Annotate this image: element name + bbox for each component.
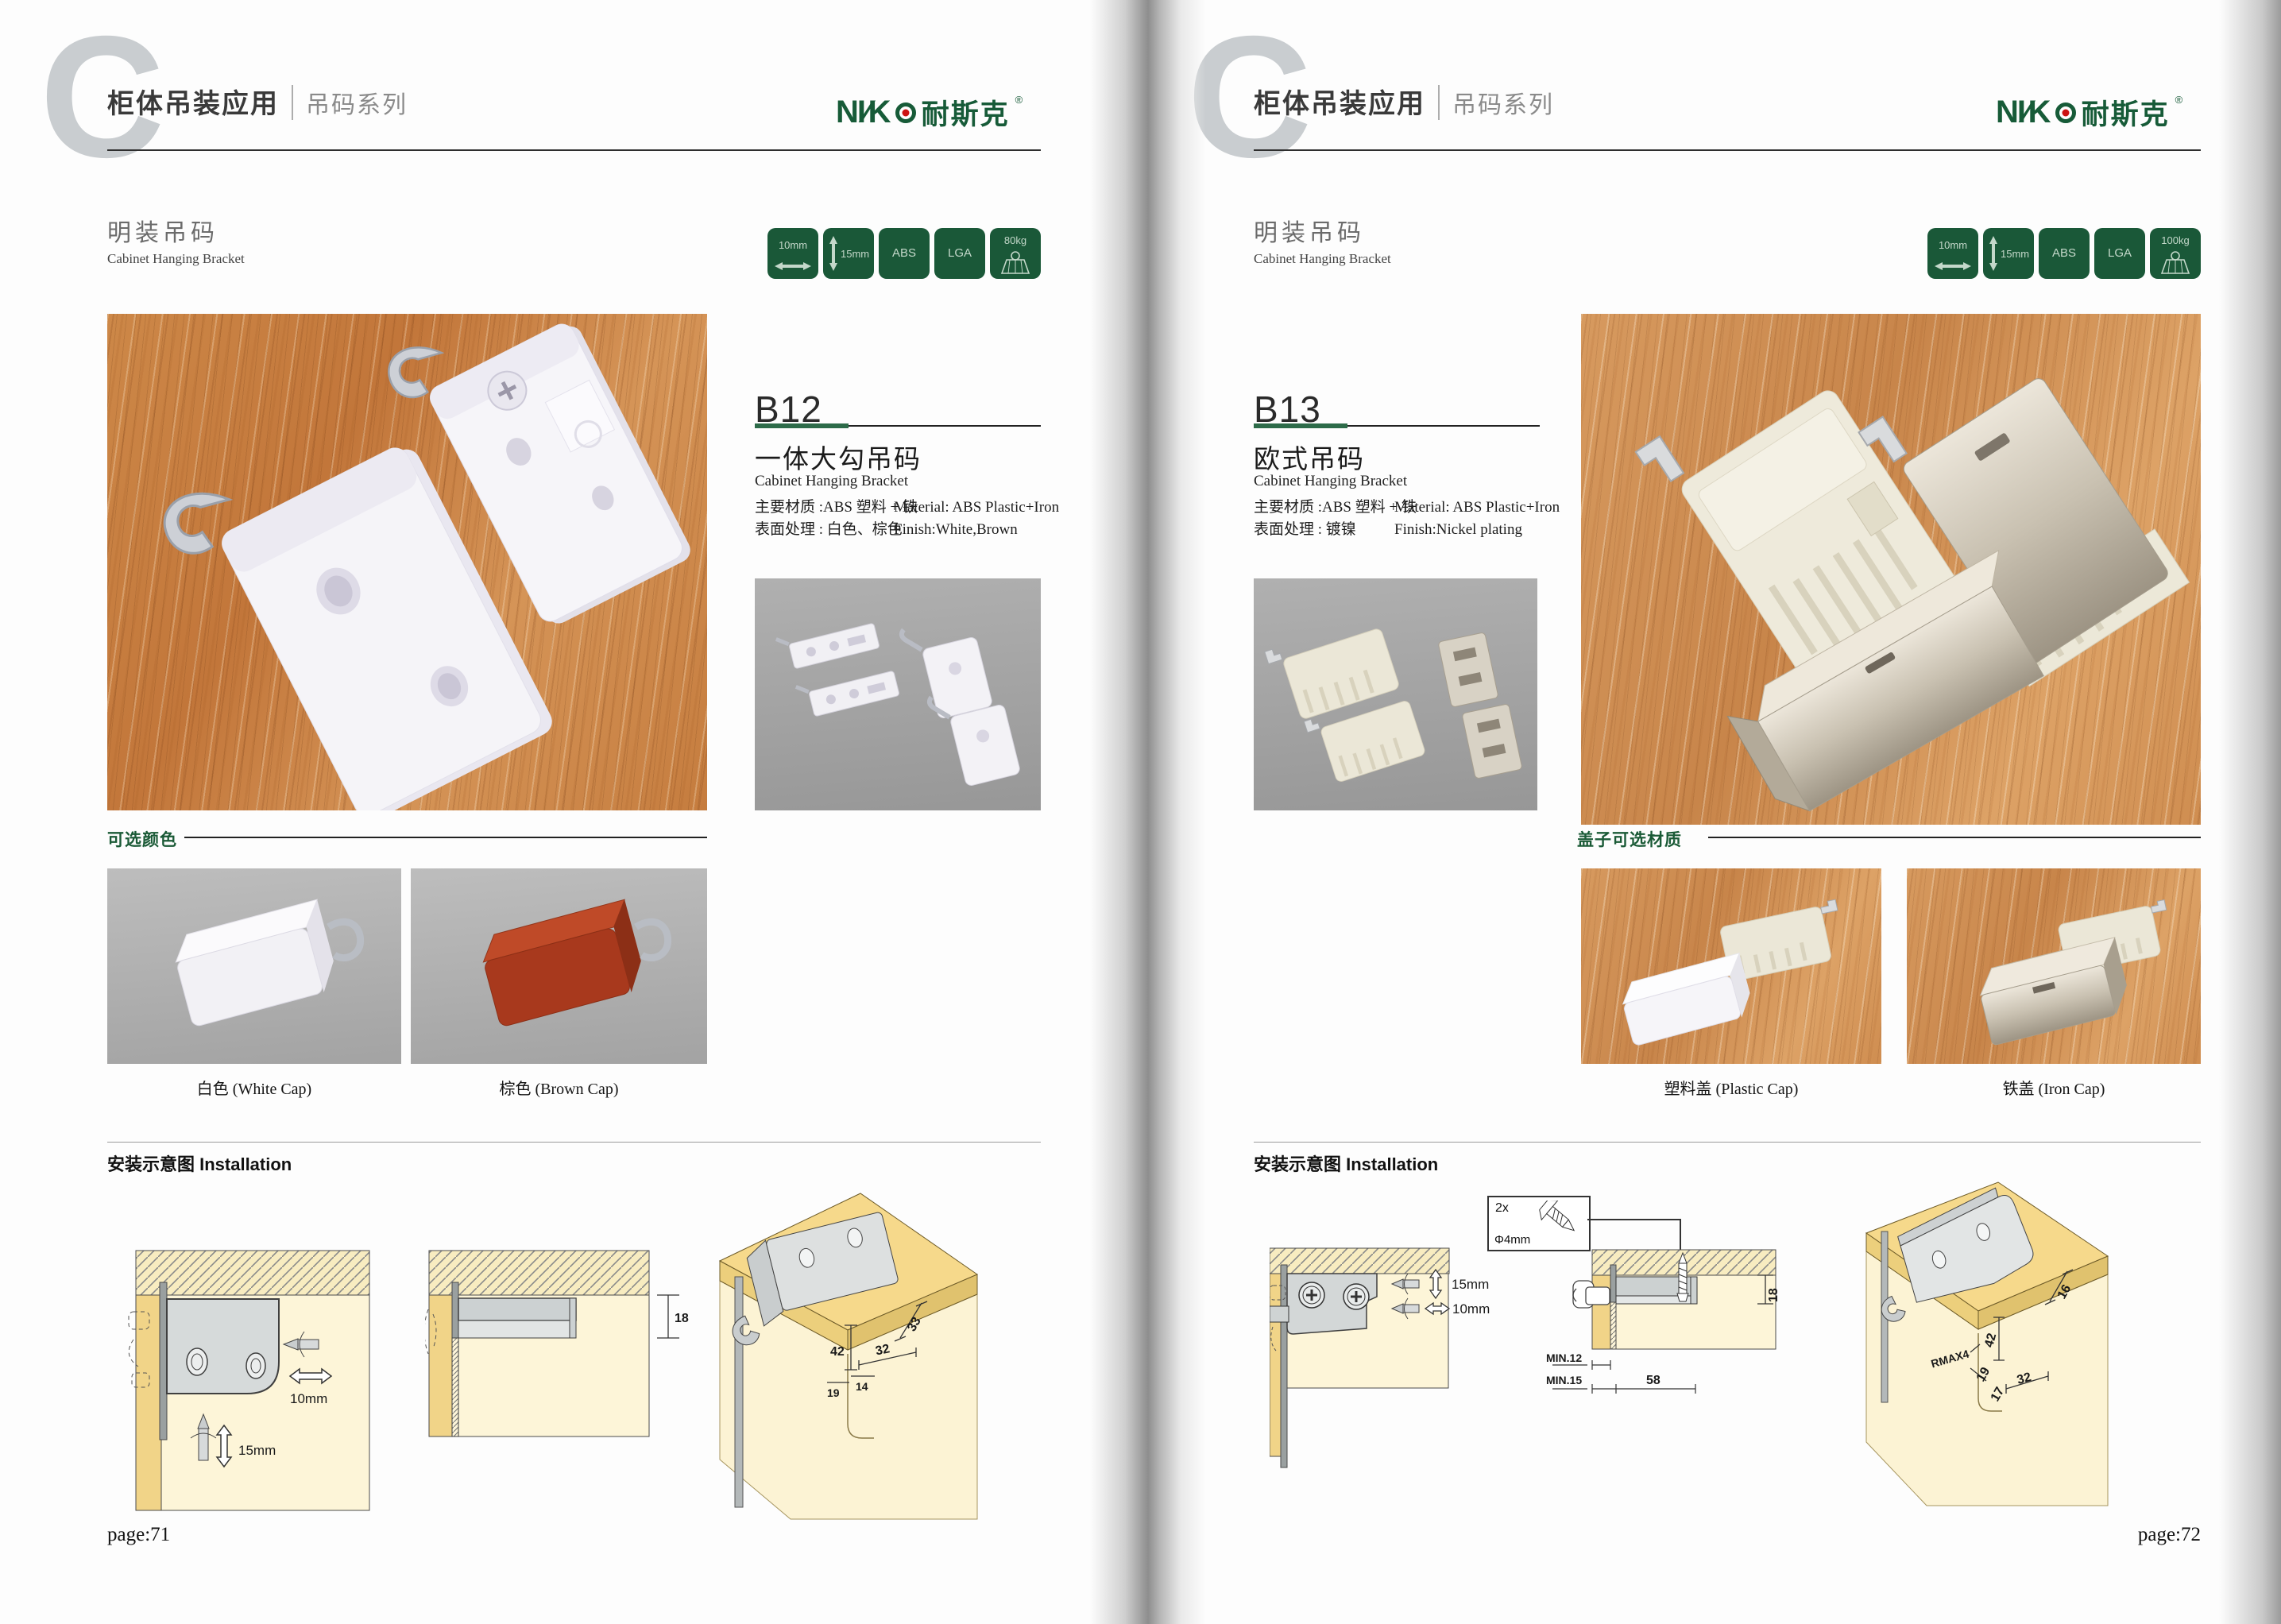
option-photo-plastic bbox=[1581, 868, 1881, 1064]
finish-en: Finish:White,Brown bbox=[894, 520, 1018, 540]
install-diagram-3: 33 42 32 14 19 bbox=[711, 1185, 1057, 1523]
material-en: Material: ABS Plastic+Iron bbox=[894, 497, 1059, 518]
option-caption: 塑料盖 (Plastic Cap) bbox=[1581, 1076, 1881, 1099]
spec-badge-label: ABS bbox=[2039, 228, 2090, 279]
dim-32-label: 32 bbox=[874, 1342, 891, 1358]
product-illustration bbox=[107, 314, 707, 810]
screw-diameter-label: Φ4mm bbox=[1494, 1233, 1530, 1247]
options-title: 盖子可选材质 bbox=[1577, 827, 1682, 851]
spec-badge-label: 80kg bbox=[990, 234, 1041, 246]
spec-badge-label: ABS bbox=[879, 228, 930, 279]
header-title: 柜体吊装应用 bbox=[107, 82, 279, 121]
option-photo-iron bbox=[1907, 868, 2201, 1064]
install-rule bbox=[107, 1142, 1041, 1143]
page-edge-shadow bbox=[2219, 0, 2281, 1624]
screw-qty-label: 2x bbox=[1495, 1201, 1509, 1216]
dim-min15-label: MIN.15 bbox=[1546, 1374, 1582, 1386]
logo-latin: NI∕K bbox=[836, 95, 890, 130]
spec-bad­ges: 10mm 15mm ABS LGA 100kg bbox=[1927, 228, 2201, 279]
brand-logo: NI∕K 耐斯克 ® bbox=[1996, 92, 2182, 133]
product-name-cn: 一体大勾吊码 bbox=[755, 438, 922, 476]
logo-latin: NI∕K bbox=[1996, 95, 2050, 130]
book-fold-shadow bbox=[1090, 0, 1206, 1624]
options-rule bbox=[1708, 837, 2201, 838]
logo-chinese: 耐斯克 bbox=[2082, 92, 2170, 133]
width-arrow-icon bbox=[773, 261, 813, 272]
option-photo-brown bbox=[411, 868, 707, 1064]
dim-10mm-label: 10mm bbox=[1452, 1301, 1490, 1317]
logo-ring-icon bbox=[895, 102, 916, 123]
width-arrow-icon bbox=[1933, 261, 1973, 272]
option-caption: 铁盖 (Iron Cap) bbox=[1907, 1076, 2201, 1099]
logo-registered-mark: ® bbox=[1015, 94, 1023, 106]
product-photo-main bbox=[107, 314, 707, 810]
option-illustration-brown bbox=[411, 868, 707, 1064]
section-title-en: Cabinet Hanging Bracket bbox=[107, 251, 245, 267]
spec-badge-material: ABS bbox=[2039, 228, 2090, 279]
spec-badge-certification: LGA bbox=[934, 228, 985, 279]
spec-badge-label: LGA bbox=[934, 228, 985, 279]
header-series: 吊码系列 bbox=[292, 85, 408, 120]
option-illustration-iron bbox=[1907, 868, 2201, 1064]
logo-registered-mark: ® bbox=[2175, 94, 2183, 106]
product-rule bbox=[755, 423, 1041, 428]
spec-badge-width: 10mm bbox=[767, 228, 818, 279]
material-en: Material: ABS Plastic+Iron bbox=[1394, 497, 1560, 518]
install-diagram-1: 10mm 15mm bbox=[127, 1236, 407, 1516]
spec-badge-height: 15mm bbox=[1983, 228, 2034, 279]
spec-badge-label: 10mm bbox=[767, 239, 818, 251]
option-illustration-plastic bbox=[1581, 868, 1881, 1064]
logo-chinese: 耐斯克 bbox=[922, 92, 1010, 133]
page-header: 柜体吊装应用 吊码系列 bbox=[1254, 82, 1554, 121]
section-title-cn: 明装吊码 bbox=[1254, 213, 1365, 248]
spec-badge-width: 10mm bbox=[1927, 228, 1978, 279]
logo-ring-icon bbox=[2055, 102, 2076, 123]
dim-15mm-label: 15mm bbox=[1452, 1277, 1489, 1292]
page-number: page:72 bbox=[2034, 1524, 2201, 1546]
dim-58-label: 58 bbox=[1646, 1374, 1660, 1387]
header-series: 吊码系列 bbox=[1438, 85, 1554, 120]
spec-badge-certification: LGA bbox=[2094, 228, 2145, 279]
height-arrow-icon bbox=[1988, 235, 1999, 272]
dim-min12-label: MIN.12 bbox=[1546, 1351, 1582, 1364]
dim-10mm-label: 10mm bbox=[290, 1391, 327, 1406]
spec-badge-load: 100kg bbox=[2150, 228, 2201, 279]
install-rule bbox=[1254, 1142, 2201, 1143]
product-name-en: Cabinet Hanging Bracket bbox=[1254, 473, 1407, 490]
spec-badge-label: 15mm bbox=[841, 248, 869, 260]
dim-14-label: 14 bbox=[856, 1380, 868, 1393]
product-illustration-small bbox=[755, 578, 1041, 810]
load-capacity-icon bbox=[2157, 251, 2194, 275]
option-caption: 棕色 (Brown Cap) bbox=[411, 1076, 707, 1099]
screw-leader-line bbox=[1587, 1219, 1681, 1220]
install-title: 安装示意图 Installation bbox=[107, 1150, 292, 1176]
product-illustration-small bbox=[1254, 578, 1537, 810]
option-illustration-white bbox=[107, 868, 401, 1064]
product-photo-small bbox=[755, 578, 1041, 810]
install-diagram-2: 18 MIN.12 MIN.15 58 bbox=[1541, 1233, 1839, 1511]
finish-cn: 表面处理 : 白色、棕色 bbox=[755, 520, 903, 540]
spec-badge-label: 100kg bbox=[2150, 234, 2201, 246]
section-title-cn: 明装吊码 bbox=[107, 213, 218, 248]
product-illustration bbox=[1581, 314, 2201, 825]
product-name-en: Cabinet Hanging Bracket bbox=[755, 473, 908, 490]
load-capacity-icon bbox=[997, 251, 1034, 275]
page-number: page:71 bbox=[107, 1524, 170, 1546]
option-caption: 白色 (White Cap) bbox=[107, 1076, 401, 1099]
spec-badge-label: LGA bbox=[2094, 228, 2145, 279]
material-cn: 主要材质 :ABS 塑料 + 铁 bbox=[1254, 497, 1417, 518]
install-title: 安装示意图 Installation bbox=[1254, 1150, 1438, 1176]
dim-18-label: 18 bbox=[1767, 1288, 1780, 1302]
spec-badge-label: 15mm bbox=[2001, 248, 2029, 260]
product-name-cn: 欧式吊码 bbox=[1254, 438, 1365, 476]
spec-badge-label: 10mm bbox=[1927, 239, 1978, 251]
install-diagram-2: 18 bbox=[425, 1236, 691, 1516]
product-photo-small bbox=[1254, 578, 1537, 810]
options-title: 可选颜色 bbox=[107, 827, 177, 851]
header-rule bbox=[107, 149, 1041, 151]
page-header: 柜体吊装应用 吊码系列 bbox=[107, 82, 408, 121]
install-diagram-1: 15mm 10mm bbox=[1270, 1233, 1565, 1503]
finish-en: Finish:Nickel plating bbox=[1394, 520, 1522, 540]
brand-logo: NI∕K 耐斯克 ® bbox=[836, 92, 1023, 133]
dim-42-label: 42 bbox=[830, 1345, 845, 1359]
height-arrow-icon bbox=[828, 235, 839, 272]
section-title-en: Cabinet Hanging Bracket bbox=[1254, 251, 1391, 267]
dim-15mm-label: 15mm bbox=[238, 1443, 276, 1458]
spec-badge-material: ABS bbox=[879, 228, 930, 279]
install-diagram-3: 16 42 RMAX4 19 17 32 bbox=[1851, 1168, 2185, 1510]
spec-badges: 10mm 15mm ABS LGA 80kg bbox=[767, 228, 1041, 279]
finish-cn: 表面处理 : 镀镍 bbox=[1254, 520, 1356, 540]
option-photo-white bbox=[107, 868, 401, 1064]
dim-18-label: 18 bbox=[675, 1312, 689, 1325]
product-rule bbox=[1254, 423, 1540, 428]
header-rule bbox=[1254, 149, 2201, 151]
header-title: 柜体吊装应用 bbox=[1254, 82, 1425, 121]
spec-badge-height: 15mm bbox=[823, 228, 874, 279]
options-rule bbox=[184, 837, 707, 838]
product-photo-main bbox=[1581, 314, 2201, 825]
catalog-spread: C 柜体吊装应用 吊码系列 NI∕K 耐斯克 ® 明装吊码 Cabinet Ha… bbox=[0, 0, 2281, 1624]
spec-badge-load: 80kg bbox=[990, 228, 1041, 279]
dim-19-label: 19 bbox=[827, 1386, 840, 1399]
